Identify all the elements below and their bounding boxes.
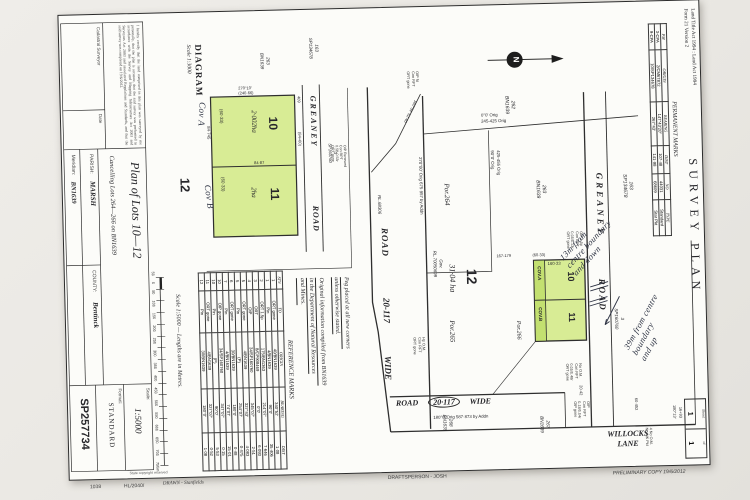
parish-label: PARISH: <box>87 154 93 174</box>
note-pegs: Peg placed at all new cornersunless othe… <box>330 277 351 349</box>
footer-reference: HL/2040/ <box>124 483 144 489</box>
por-264: Por.264 <box>442 183 450 205</box>
north-point-icon: N <box>511 57 520 63</box>
lot-11-number: 11 <box>566 312 576 322</box>
meridian-label: Meridian: <box>69 155 75 176</box>
diagram-dim-409: 409 <box>297 96 302 103</box>
act-line: Land Title Act 1994 : Land Act 1994 <box>689 8 697 85</box>
road-a-wide: WIDE <box>382 356 392 380</box>
corner-note-3: No O.M.Con RFT0.05/0.48rORT gone <box>565 363 583 381</box>
diagram-greaney: GREANEY <box>308 96 318 148</box>
note-original-info: Original information compiled from BN163… <box>295 277 326 385</box>
footer-drawn-by: DRAWN - Stanfields <box>163 480 204 486</box>
corner-note-5: 4 No O.M.No MK Pkt <box>644 427 653 445</box>
parcel-268: 268BN1639 <box>442 414 454 431</box>
diagram-scale: Scale 1:3000 <box>185 45 192 74</box>
bearing-270: 270°00′ Orig 675·957 by Addn <box>417 157 423 215</box>
diagram-dim-84-87: 84·87 <box>254 161 264 166</box>
dim-160-33: 160·33 <box>548 262 561 267</box>
road-b-number-oval: 20·117 <box>428 396 460 408</box>
handwritten-cov-b: Cov B <box>202 184 215 209</box>
survey-plan-title: SURVEY PLAN <box>686 158 703 294</box>
road-a-word: ROAD <box>379 228 390 257</box>
diagram-title: DIAGRAM <box>192 44 203 96</box>
meridian-value: BN1639 <box>70 181 78 203</box>
parcel-163: 163SP134678 <box>621 174 634 198</box>
format-value: STANDARD <box>106 403 115 449</box>
county-label: COUNTY: <box>90 270 96 292</box>
corner-note-6: Hp O.M.Con RFTORT gone <box>412 337 425 355</box>
dim-180-13: 180°13′ <box>672 405 677 419</box>
dim-20-42: 20·42 <box>578 385 583 395</box>
sheet-total: 1 <box>687 441 694 445</box>
sheet-of-label: of <box>702 429 707 458</box>
sheet-label: Sheet <box>701 399 706 428</box>
format-label: Format: <box>117 388 122 404</box>
diagram-parcel-263: 263BN1639 <box>259 53 271 70</box>
dim-60-452: 60·452 <box>634 398 639 411</box>
scale-label: Scale: <box>145 388 150 401</box>
diagram-road-word: ROAD <box>310 206 319 232</box>
dim-16-93: 16+93 <box>678 407 683 418</box>
road-b-wide: WIDE <box>470 396 492 406</box>
diagram-corner-note: OIP RenewedCon RPT0.5B 0.53rORT gone <box>330 145 347 168</box>
sheet-number: 1 <box>686 412 693 416</box>
date-signature-label: Date <box>97 114 102 124</box>
road-b-word: ROAD <box>396 398 418 408</box>
diagram-dim-left: 270°10′(240·66) <box>238 85 253 96</box>
parish-value: MARSH <box>88 181 96 206</box>
county-value: Bentinck <box>91 302 99 328</box>
plan-number: SP257734 <box>78 398 91 450</box>
diagram-lot-10: 10 <box>266 117 280 131</box>
greaney-road-word: ROAD <box>596 279 607 312</box>
por-266: Por.266 <box>514 321 521 340</box>
diagram-parcel-163: 163SP134678 <box>308 38 320 59</box>
bearing-0-0: 0°0′ Orig245-425 Orig <box>481 112 506 124</box>
diagram-lot-11: 11 <box>268 188 281 201</box>
plan-title: Plan of Lots 10—12 <box>128 162 144 259</box>
scale-value: 1:5000 <box>132 408 143 434</box>
diagram-lot-10-dim: (60·33) <box>218 109 223 124</box>
surveyor-signature-label: Cadastral Surveyor <box>95 27 101 66</box>
sheet-number-box: Sheet1 of1 <box>684 398 707 459</box>
form-version-line: Form 21 Version 2 <box>682 9 689 48</box>
parcel-267: 267BN1639 <box>539 416 551 433</box>
dim-60-33: (60·33) <box>532 253 545 258</box>
reference-marks-table: STNTOORIGINBEARINGDIST 1ORT gone40/BN163… <box>198 270 288 471</box>
bearing-90-0: 425-455 Orig90°0′ Orig <box>490 150 502 175</box>
lot-12-area: 31·04 ha <box>447 264 456 292</box>
footer-draftsperson: DRAFTSPERSON - JOSH <box>388 474 447 481</box>
diagram-lot-11-dim: (60·33) <box>219 177 224 192</box>
covenant-b-label: COV.B <box>538 307 543 321</box>
road-a-number: 20-117 <box>381 298 391 323</box>
diagram-lot-12: 12 <box>177 178 192 193</box>
gov-reserve-label: Gov.RL.70050699 <box>432 251 444 278</box>
diagram-lot-11-area: 2ha <box>249 187 257 198</box>
parcel-263: 263BN1639 <box>534 180 547 198</box>
diagram-lot-10-area: 2·002ha <box>249 110 257 133</box>
corner-note-1: OIP fdCon RFTORT gone <box>406 71 419 89</box>
diagram-dim-84-60: (84+60) <box>297 132 302 146</box>
scanned-survey-plan-page: { "form": { "act_line": "Land Title Act … <box>0 0 750 500</box>
footer-job-number: 1038 <box>90 484 101 490</box>
rl-68306: RL.68306 <box>376 195 381 214</box>
handwritten-cov-a: Cov A <box>196 102 207 127</box>
corner-note-4: OIPCon RFT0.18/0.04rOIP gone <box>573 401 591 419</box>
lot-12-number: 12 <box>463 269 479 285</box>
parcel-3-sp160760: 3SP160760 <box>613 308 625 329</box>
por-265: Por.265 <box>447 320 455 342</box>
dim-167-179: 167-179 <box>496 254 511 259</box>
covenant-a-label: COV.A <box>537 266 542 280</box>
diagram-dim-84-745: 84·745 <box>206 126 211 139</box>
plan-sheet: Land Title Act 1994 : Land Act 1994 Form… <box>57 0 710 481</box>
footer-preliminary-copy: PRELIMINARY COPY 19/6/2012 <box>613 469 686 477</box>
certification-text: I hereby certify that the land comprised… <box>117 25 143 146</box>
